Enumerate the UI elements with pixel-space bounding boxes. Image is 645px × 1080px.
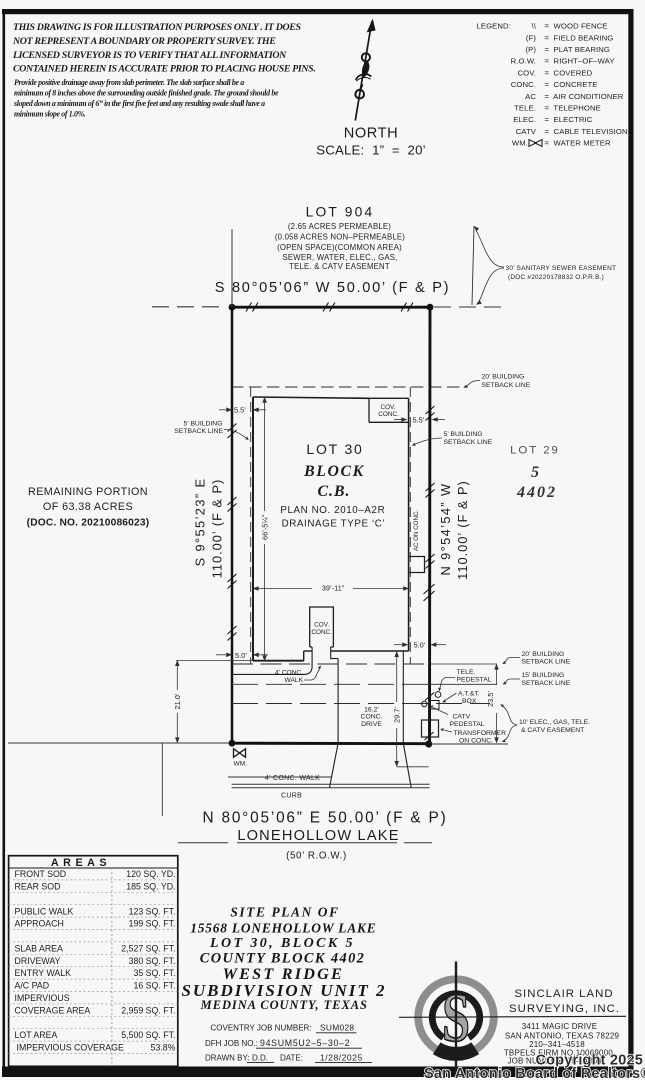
svg-text:185 SQ. YD.: 185 SQ. YD. bbox=[126, 881, 175, 891]
svg-text:sloped down a minimum of 6” in: sloped down a minimum of 6” in the first… bbox=[13, 99, 265, 108]
svg-text:THIS DRAWING IS FOR ILLUSTRATI: THIS DRAWING IS FOR ILLUSTRATION PURPOSE… bbox=[13, 22, 302, 33]
svg-text:15568 LONEHOLLOW LAKE: 15568 LONEHOLLOW LAKE bbox=[190, 921, 376, 936]
svg-text:LOT 30: LOT 30 bbox=[306, 441, 363, 457]
svg-text:123 SQ. FT.: 123 SQ. FT. bbox=[129, 906, 176, 916]
svg-text:ELEC.: ELEC. bbox=[513, 115, 536, 124]
svg-text:= COVERED: = COVERED bbox=[545, 68, 593, 77]
svg-text:A.T.&T.: A.T.&T. bbox=[458, 691, 480, 698]
svg-text:DATE:: DATE: bbox=[280, 1053, 303, 1062]
svg-text:PUBLIC WALK: PUBLIC WALK bbox=[15, 906, 74, 916]
svg-text:C.B.: C.B. bbox=[318, 483, 351, 500]
svg-text:CONC.: CONC. bbox=[361, 714, 383, 721]
svg-text:COVENTRY JOB NUMBER:: COVENTRY JOB NUMBER: bbox=[211, 1024, 312, 1033]
svg-text:5.5’: 5.5’ bbox=[234, 406, 246, 415]
svg-text:SETBACK LINE: SETBACK LINE bbox=[522, 659, 571, 666]
svg-text:20’ BUILDING: 20’ BUILDING bbox=[522, 651, 565, 658]
svg-text:= FIELD BEARING: = FIELD BEARING bbox=[545, 33, 614, 42]
svg-text:NOT REPRESENT A BOUNDARY OR PR: NOT REPRESENT A BOUNDARY OR PROPERTY SUR… bbox=[12, 36, 276, 47]
svg-text:5.0’: 5.0’ bbox=[235, 651, 247, 660]
svg-text:OF 63.38 ACRES: OF 63.38 ACRES bbox=[43, 501, 133, 513]
svg-text:4’ CONC. WALK: 4’ CONC. WALK bbox=[265, 775, 320, 782]
svg-text:IMPERVIOUS COVERAGE: IMPERVIOUS COVERAGE bbox=[17, 1043, 125, 1053]
svg-text:380 SQ. FT.: 380 SQ. FT. bbox=[129, 956, 176, 966]
svg-text:\\: \\ bbox=[532, 22, 537, 31]
svg-text:AC: AC bbox=[525, 92, 536, 101]
svg-text:20’ BUILDING: 20’ BUILDING bbox=[482, 374, 525, 381]
svg-text:REAR SOD: REAR SOD bbox=[15, 881, 61, 891]
svg-text:LEGEND:: LEGEND: bbox=[477, 22, 511, 31]
svg-text:(OPEN SPACE)(COMMON AREA): (OPEN SPACE)(COMMON AREA) bbox=[277, 243, 402, 252]
svg-text:AC ON CONC.: AC ON CONC. bbox=[413, 510, 420, 552]
svg-text:minimum of 8 inches above the: minimum of 8 inches above the surroundin… bbox=[14, 88, 279, 97]
svg-text:COVERAGE AREA: COVERAGE AREA bbox=[15, 1005, 91, 1015]
svg-text:LOT 29: LOT 29 bbox=[510, 444, 560, 456]
svg-text:SETBACK LINE: SETBACK LINE bbox=[174, 428, 223, 435]
svg-text:BOX: BOX bbox=[462, 698, 477, 705]
svg-text:5.5’: 5.5’ bbox=[413, 416, 425, 425]
svg-text:NORTH: NORTH bbox=[344, 125, 399, 141]
svg-text:A/C PAD: A/C PAD bbox=[15, 981, 50, 991]
svg-text:120 SQ. YD.: 120 SQ. YD. bbox=[126, 869, 175, 879]
svg-text:WM.: WM. bbox=[234, 760, 248, 767]
svg-text:= WATER METER: = WATER METER bbox=[545, 139, 611, 148]
svg-text:110.00’ (F & P): 110.00’ (F & P) bbox=[210, 479, 225, 579]
svg-text:39’-11”: 39’-11” bbox=[322, 584, 345, 593]
svg-text:SURVEYING, INC.: SURVEYING, INC. bbox=[509, 1003, 620, 1015]
svg-text:(0.058 ACRES NON–PERMEABLE): (0.058 ACRES NON–PERMEABLE) bbox=[275, 233, 405, 242]
svg-text:San Antonio Board of Realtors®: San Antonio Board of Realtors® bbox=[424, 1066, 645, 1080]
svg-text:BLOCK: BLOCK bbox=[303, 463, 365, 480]
svg-text:ENTRY WALK: ENTRY WALK bbox=[15, 968, 72, 978]
svg-text:D.D.: D.D. bbox=[252, 1053, 268, 1062]
svg-text:35 SQ. FT.: 35 SQ. FT. bbox=[133, 968, 175, 978]
svg-text:(F): (F) bbox=[526, 33, 536, 42]
svg-text:DRAINAGE TYPE ‘C’: DRAINAGE TYPE ‘C’ bbox=[282, 518, 386, 529]
svg-text:DRIVEWAY: DRIVEWAY bbox=[15, 956, 61, 966]
svg-text:LOT 904: LOT 904 bbox=[306, 204, 375, 219]
svg-text:2,959 SQ. FT.: 2,959 SQ. FT. bbox=[121, 1005, 175, 1015]
svg-text:(DOC #20220178832 O.P.R.B.): (DOC #20220178832 O.P.R.B.) bbox=[508, 274, 604, 281]
svg-text:CATV: CATV bbox=[453, 713, 471, 720]
svg-text:5’ BUILDING: 5’ BUILDING bbox=[183, 421, 222, 428]
svg-text:199 SQ. FT.: 199 SQ. FT. bbox=[129, 919, 176, 929]
svg-text:PEDESTAL: PEDESTAL bbox=[450, 721, 485, 728]
svg-text:TRANSFORMER: TRANSFORMER bbox=[454, 730, 507, 737]
svg-text:DRIVE: DRIVE bbox=[361, 721, 382, 728]
svg-text:(2.65 ACRES PERMEABLE): (2.65 ACRES PERMEABLE) bbox=[288, 222, 391, 231]
svg-text:29.7’: 29.7’ bbox=[392, 707, 401, 723]
svg-text:53.8%: 53.8% bbox=[151, 1043, 176, 1053]
svg-text:S 9°55’23” E: S 9°55’23” E bbox=[193, 478, 208, 567]
svg-text:PEDESTAL: PEDESTAL bbox=[457, 677, 492, 684]
svg-text:& CATV EASEMENT: & CATV EASEMENT bbox=[521, 727, 584, 734]
svg-text:SLAB AREA: SLAB AREA bbox=[15, 943, 64, 953]
svg-text:5,500 SQ. FT.: 5,500 SQ. FT. bbox=[121, 1030, 175, 1040]
svg-text:5: 5 bbox=[531, 464, 540, 481]
svg-text:16.2’: 16.2’ bbox=[364, 707, 379, 714]
svg-text:TELE.: TELE. bbox=[457, 669, 476, 676]
svg-text:66’-5¼”: 66’-5¼” bbox=[260, 514, 269, 540]
svg-text:= CABLE TELEVISION: = CABLE TELEVISION bbox=[545, 127, 628, 136]
svg-text:10’ ELEC., GAS, TELE.: 10’ ELEC., GAS, TELE. bbox=[519, 719, 590, 726]
svg-text:DFH JOB NO.:: DFH JOB NO.: bbox=[205, 1039, 258, 1048]
svg-text:SCALE: 1” = 20’: SCALE: 1” = 20’ bbox=[316, 143, 426, 158]
svg-text:CONC.: CONC. bbox=[311, 629, 332, 636]
svg-text:3411 MAGIC DRIVE: 3411 MAGIC DRIVE bbox=[522, 1022, 598, 1031]
svg-text:COV.: COV. bbox=[518, 68, 537, 77]
svg-text:30’ SANITARY SEWER EASEMENT: 30’ SANITARY SEWER EASEMENT bbox=[506, 265, 617, 272]
svg-text:(50’ R.O.W.): (50’ R.O.W.) bbox=[286, 850, 347, 861]
svg-text:COV.: COV. bbox=[380, 404, 395, 411]
svg-text:WALK: WALK bbox=[285, 677, 304, 684]
svg-text:21.0’: 21.0’ bbox=[173, 693, 182, 709]
svg-text:16 SQ. FT.: 16 SQ. FT. bbox=[133, 981, 175, 991]
svg-text:APPROACH: APPROACH bbox=[15, 919, 64, 929]
svg-text:CONC.: CONC. bbox=[378, 411, 399, 418]
svg-text:R.O.W.: R.O.W. bbox=[511, 57, 536, 66]
svg-text:MEDINA COUNTY, TEXAS: MEDINA COUNTY, TEXAS bbox=[200, 998, 368, 1012]
svg-text:(P): (P) bbox=[525, 45, 536, 54]
svg-text:5.0’: 5.0’ bbox=[414, 641, 426, 650]
svg-text:SETBACK LINE: SETBACK LINE bbox=[444, 439, 493, 446]
svg-text:WM.: WM. bbox=[512, 139, 528, 148]
svg-text:CURB: CURB bbox=[281, 792, 302, 799]
svg-text:Provide positive drainage away: Provide positive drainage away from slab… bbox=[14, 78, 244, 87]
svg-text:SETBACK LINE: SETBACK LINE bbox=[522, 680, 571, 687]
svg-text:WEST RIDGE: WEST RIDGE bbox=[223, 965, 344, 983]
svg-text:N 9°54’54” W: N 9°54’54” W bbox=[438, 482, 453, 575]
svg-text:TELE.: TELE. bbox=[514, 104, 536, 113]
svg-text:= PLAT BEARING: = PLAT BEARING bbox=[545, 45, 611, 54]
svg-text:S 80°05’06” W 50.00’ (F & P): S 80°05’06” W 50.00’ (F & P) bbox=[215, 280, 450, 296]
svg-text:CONC.: CONC. bbox=[511, 80, 536, 89]
svg-text:15’ BUILDING: 15’ BUILDING bbox=[522, 672, 565, 679]
svg-text:ON CONC.: ON CONC. bbox=[459, 738, 493, 745]
svg-text:COV.: COV. bbox=[314, 622, 329, 629]
svg-text:IMPERVIOUS: IMPERVIOUS bbox=[15, 993, 70, 1003]
svg-text:4’ CONC.: 4’ CONC. bbox=[275, 670, 303, 677]
svg-text:LOT 30, BLOCK 5: LOT 30, BLOCK 5 bbox=[209, 936, 355, 951]
svg-text:CATV: CATV bbox=[516, 127, 537, 136]
svg-text:SEWER, WATER, ELEC., GAS,: SEWER, WATER, ELEC., GAS, bbox=[282, 253, 397, 262]
svg-text:REMAINING PORTION: REMAINING PORTION bbox=[28, 486, 148, 498]
svg-text:= ELECTRIC: = ELECTRIC bbox=[545, 115, 593, 124]
svg-text:= RIGHT–OF–WAY: = RIGHT–OF–WAY bbox=[545, 57, 615, 66]
svg-text:94SUM5U2–5–30–2: 94SUM5U2–5–30–2 bbox=[260, 1038, 350, 1048]
svg-text:= AIR CONDITIONER: = AIR CONDITIONER bbox=[545, 92, 624, 101]
svg-text:LONEHOLLOW LAKE: LONEHOLLOW LAKE bbox=[237, 828, 399, 844]
svg-text:5’ BUILDING: 5’ BUILDING bbox=[444, 431, 483, 438]
svg-text:4402: 4402 bbox=[516, 484, 557, 501]
svg-text:LICENSED SURVEYOR IS TO VERIFY: LICENSED SURVEYOR IS TO VERIFY THAT ALL … bbox=[12, 50, 287, 61]
svg-text:minimum slope of 1.0%.: minimum slope of 1.0%. bbox=[14, 110, 86, 119]
svg-text:TELE. & CATV EASEMENT: TELE. & CATV EASEMENT bbox=[289, 262, 390, 271]
svg-text:110.00’ (F & P): 110.00’ (F & P) bbox=[455, 480, 470, 580]
svg-text:N 80°05’06” E 50.00’ (F & P): N 80°05’06” E 50.00’ (F & P) bbox=[202, 809, 447, 826]
svg-text:SUM028: SUM028 bbox=[320, 1023, 354, 1033]
svg-text:= TELEPHONE: = TELEPHONE bbox=[545, 104, 601, 113]
svg-text:PLAN NO. 2010–A2R: PLAN NO. 2010–A2R bbox=[280, 505, 385, 516]
svg-text:AREAS: AREAS bbox=[51, 857, 111, 869]
svg-text:CONTAINED HEREIN IS ACCURATE P: CONTAINED HEREIN IS ACCURATE PRIOR TO PL… bbox=[13, 64, 315, 75]
svg-text:DRAWN BY:: DRAWN BY: bbox=[205, 1053, 250, 1062]
svg-text:= WOOD FENCE: = WOOD FENCE bbox=[545, 22, 608, 31]
svg-text:SINCLAIR LAND: SINCLAIR LAND bbox=[514, 988, 613, 1000]
svg-text:FRONT SOD: FRONT SOD bbox=[15, 869, 67, 879]
svg-text:SETBACK LINE: SETBACK LINE bbox=[482, 382, 531, 389]
svg-text:(DOC. NO. 20210086023): (DOC. NO. 20210086023) bbox=[27, 517, 150, 528]
svg-text:23.5’: 23.5’ bbox=[486, 691, 495, 707]
svg-text:SITE PLAN OF: SITE PLAN OF bbox=[230, 904, 339, 919]
svg-text:2,527 SQ. FT.: 2,527 SQ. FT. bbox=[121, 943, 175, 953]
svg-text:LOT AREA: LOT AREA bbox=[15, 1030, 58, 1040]
svg-text:1/28/2025: 1/28/2025 bbox=[320, 1052, 363, 1062]
svg-text:= CONCRETE: = CONCRETE bbox=[545, 80, 598, 89]
